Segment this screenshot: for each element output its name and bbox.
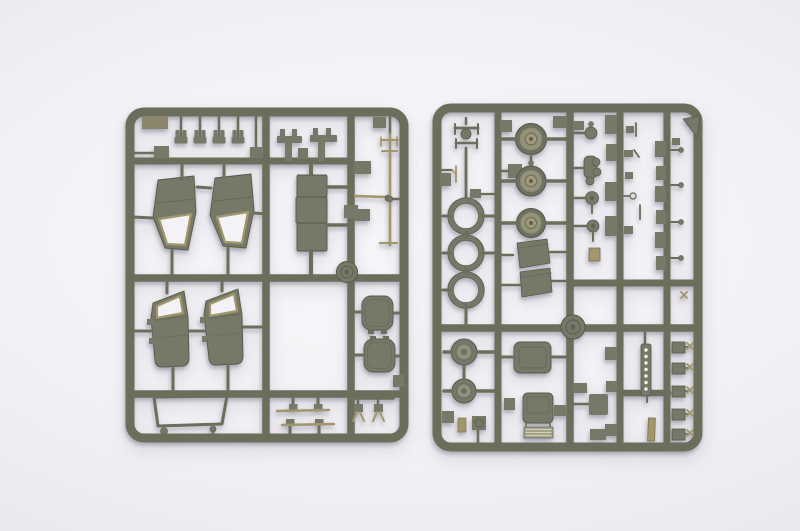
right-sprue-shape	[586, 177, 594, 185]
left-sprue-shape	[368, 329, 374, 334]
right-sprue-shape	[589, 122, 594, 127]
right-sprue-shape	[606, 381, 617, 392]
right-sprue-shape	[648, 418, 656, 441]
studio-photo-background	[0, 0, 800, 531]
right-sprue-shape	[624, 226, 633, 234]
left-sprue-shape	[355, 209, 370, 221]
right-sprue-shape	[655, 186, 666, 202]
right-sprue-shape	[453, 277, 478, 302]
right-sprue-shape	[590, 429, 606, 440]
left-sprue-shape	[364, 339, 395, 372]
left-sprue-shape	[195, 130, 199, 138]
right-sprue-shape	[605, 347, 617, 360]
left-sprue-shape	[373, 117, 386, 128]
right-sprue-shape	[605, 115, 617, 134]
left-sprue-shape	[296, 197, 327, 223]
left-sprue-shape	[297, 223, 327, 251]
left-sprue-shape	[362, 296, 393, 330]
right-sprue-shape	[472, 416, 486, 430]
right-sprue-shape	[470, 189, 481, 198]
right-sprue-shape	[655, 141, 666, 157]
right-sprue-shape	[672, 409, 685, 420]
left-sprue-shape	[370, 336, 376, 340]
left-sprue-shape	[213, 137, 226, 144]
right-sprue-shape	[656, 210, 666, 224]
left-sprue-shape	[383, 336, 389, 340]
left-sprue-shape	[233, 130, 237, 138]
right-sprue-shape	[453, 240, 478, 265]
right-sprue-shape	[442, 411, 454, 423]
right-sprue-shape	[644, 387, 647, 390]
right-sprue-shape	[678, 219, 683, 224]
right-sprue-shape	[656, 166, 666, 180]
left-sprue-shape	[280, 129, 285, 137]
left-sprue-shape	[393, 375, 404, 387]
left-sprue-shape	[277, 136, 302, 143]
left-sprue-shape	[194, 137, 207, 144]
right-sprue-shape	[672, 138, 680, 145]
left-sprue-shape	[289, 404, 298, 410]
right-sprue-shape	[529, 137, 533, 141]
left-sprue-shape	[232, 137, 245, 144]
right-sprue-shape	[451, 275, 482, 306]
right-sprue-shape	[683, 116, 700, 137]
left-sprue-shape	[197, 187, 211, 188]
left-sprue-shape	[176, 130, 180, 138]
left-sprue-shape	[277, 410, 329, 411]
right-sprue-shape	[644, 355, 647, 358]
right-sprue-shape	[678, 182, 683, 187]
right-sprue-shape	[655, 232, 666, 248]
left-sprue-shape	[354, 404, 363, 412]
right-sprue-shape	[554, 405, 566, 416]
left-sprue-shape	[210, 294, 237, 316]
left-sprue-shape	[355, 196, 386, 197]
right-sprue-shape	[529, 161, 534, 166]
left-sprue-shape	[313, 128, 318, 136]
right-sprue-shape	[672, 363, 685, 374]
right-sprue-shape	[458, 418, 466, 432]
left-sprue-shape	[345, 270, 349, 274]
left-sprue-shape	[298, 148, 308, 159]
left-sprue-shape	[221, 130, 225, 138]
left-sprue-shape	[285, 143, 292, 161]
left-sprue-shape	[326, 128, 331, 136]
right-sprue-shape	[678, 147, 683, 152]
left-sprue-shape	[254, 213, 266, 214]
right-sprue-shape	[461, 129, 471, 139]
right-sprue-shape	[585, 127, 597, 139]
left-sprue-shape	[240, 130, 244, 138]
left-sprue-shape	[310, 135, 337, 142]
right-sprue-shape	[573, 121, 584, 130]
right-sprue-shape	[605, 424, 617, 436]
right-sprue-shape	[644, 368, 647, 371]
right-sprue-shape	[644, 381, 647, 384]
right-sprue-shape	[644, 348, 647, 351]
left-sprue-shape	[202, 336, 207, 342]
right-sprue-shape	[440, 173, 451, 186]
left-sprue-shape	[381, 329, 387, 334]
left-sprue-shape	[374, 404, 383, 412]
right-sprue-shape	[672, 342, 685, 353]
left-sprue-shape	[318, 142, 325, 161]
left-sprue-shape	[183, 130, 187, 138]
right-sprue-shape	[553, 116, 567, 128]
left-sprue-shape	[133, 217, 153, 218]
right-sprue-shape	[678, 255, 683, 260]
left-sprue-shape	[157, 296, 183, 318]
left-sprue-shape	[297, 175, 327, 197]
right-sprue-shape	[451, 201, 482, 232]
right-sprue-shape	[573, 383, 587, 393]
left-sprue-shape	[154, 396, 227, 426]
right-sprue-shape	[630, 193, 636, 199]
right-sprue-shape	[589, 394, 608, 415]
left-sprue-shape	[373, 412, 377, 421]
right-sprue-shape	[606, 144, 617, 161]
right-sprue-shape	[605, 182, 617, 201]
left-sprue-shape	[214, 130, 218, 138]
right-sprue-shape	[453, 203, 478, 228]
right-sprue-shape	[644, 374, 647, 377]
right-sprue-shape	[592, 158, 600, 166]
left-sprue-shape	[380, 412, 384, 421]
left-sprue-shape	[202, 130, 206, 138]
left-sprue-shape	[360, 412, 364, 421]
right-sprue-shape	[605, 216, 617, 236]
right-sprue-shape	[634, 150, 639, 157]
left-sprue-shape	[175, 137, 188, 144]
right-sprue-shape	[520, 268, 552, 297]
right-sprue-shape	[504, 398, 515, 410]
right-sprue-shape	[461, 349, 467, 355]
right-sprue-shape	[529, 179, 533, 183]
right-sprue-shape	[589, 248, 600, 261]
right-sprue-shape	[461, 388, 467, 394]
right-sprue-shape	[517, 239, 550, 268]
right-sprue-shape	[624, 150, 633, 157]
right-sprue-shape	[625, 172, 633, 179]
left-sprue-shape	[149, 338, 154, 344]
left-sprue-shape	[250, 147, 262, 158]
right-sprue-shape	[656, 256, 666, 270]
right-sprue-wheels-and-fittings	[437, 108, 700, 447]
left-sprue-doors-and-seats	[130, 112, 404, 438]
right-sprue-shape	[591, 224, 595, 228]
right-sprue-shape	[644, 361, 647, 364]
model-kit-sprues-photo	[0, 0, 800, 531]
left-sprue-shape	[354, 161, 371, 174]
left-sprue-shape	[154, 146, 169, 158]
right-sprue-shape	[590, 196, 594, 200]
right-sprue-shape	[529, 221, 533, 225]
right-sprue-shape	[626, 126, 634, 133]
left-sprue-shape	[282, 424, 334, 425]
right-sprue-shape	[672, 386, 685, 397]
left-sprue-shape	[147, 319, 152, 325]
left-sprue-shape	[387, 196, 393, 202]
left-sprue-shape	[292, 129, 297, 137]
left-sprue-shape	[200, 317, 205, 323]
right-sprue-shape	[500, 120, 512, 132]
right-sprue-shape	[451, 238, 482, 269]
left-sprue-shape	[142, 116, 168, 129]
right-sprue-shape	[571, 325, 576, 330]
right-sprue-shape	[593, 168, 601, 176]
right-sprue-shape	[672, 429, 685, 440]
